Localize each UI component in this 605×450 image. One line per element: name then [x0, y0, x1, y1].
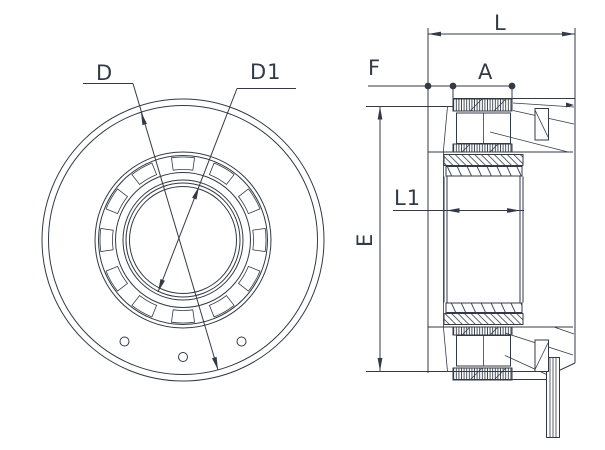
- bearing-rings: [95, 152, 271, 328]
- dim-label-f: F: [368, 56, 381, 80]
- dimension-d: D: [83, 61, 220, 371]
- dim-label-l1: L1: [394, 186, 421, 210]
- mounting-holes: [120, 337, 246, 362]
- bearing-section: [444, 99, 523, 380]
- bearing-flange-drawing: D D1: [0, 0, 605, 450]
- set-screw-top: [535, 109, 549, 141]
- dimension-l: L: [428, 11, 575, 36]
- dimension-l1: L1: [393, 186, 524, 213]
- dim-label-d: D: [96, 61, 113, 85]
- set-screw-bottom: [535, 340, 549, 372]
- dimension-f-a: F A: [368, 56, 515, 89]
- dim-dot: [509, 83, 516, 90]
- dim-label-l: L: [494, 11, 507, 35]
- dim-label-a: A: [478, 60, 493, 84]
- dim-dot: [450, 83, 457, 90]
- dim-label-d1: D1: [250, 60, 282, 84]
- dimension-e: E: [353, 107, 382, 372]
- dim-dot: [425, 83, 432, 90]
- dim-label-e: E: [353, 233, 377, 247]
- side-section-view: L F A E L1: [353, 11, 575, 438]
- dimension-d1: D1: [156, 60, 296, 293]
- front-view: D D1: [42, 60, 324, 381]
- flange-outer-circles: [42, 99, 324, 381]
- cage-roller-slots: [100, 157, 266, 323]
- technical-drawing-canvas: D D1: [0, 0, 605, 450]
